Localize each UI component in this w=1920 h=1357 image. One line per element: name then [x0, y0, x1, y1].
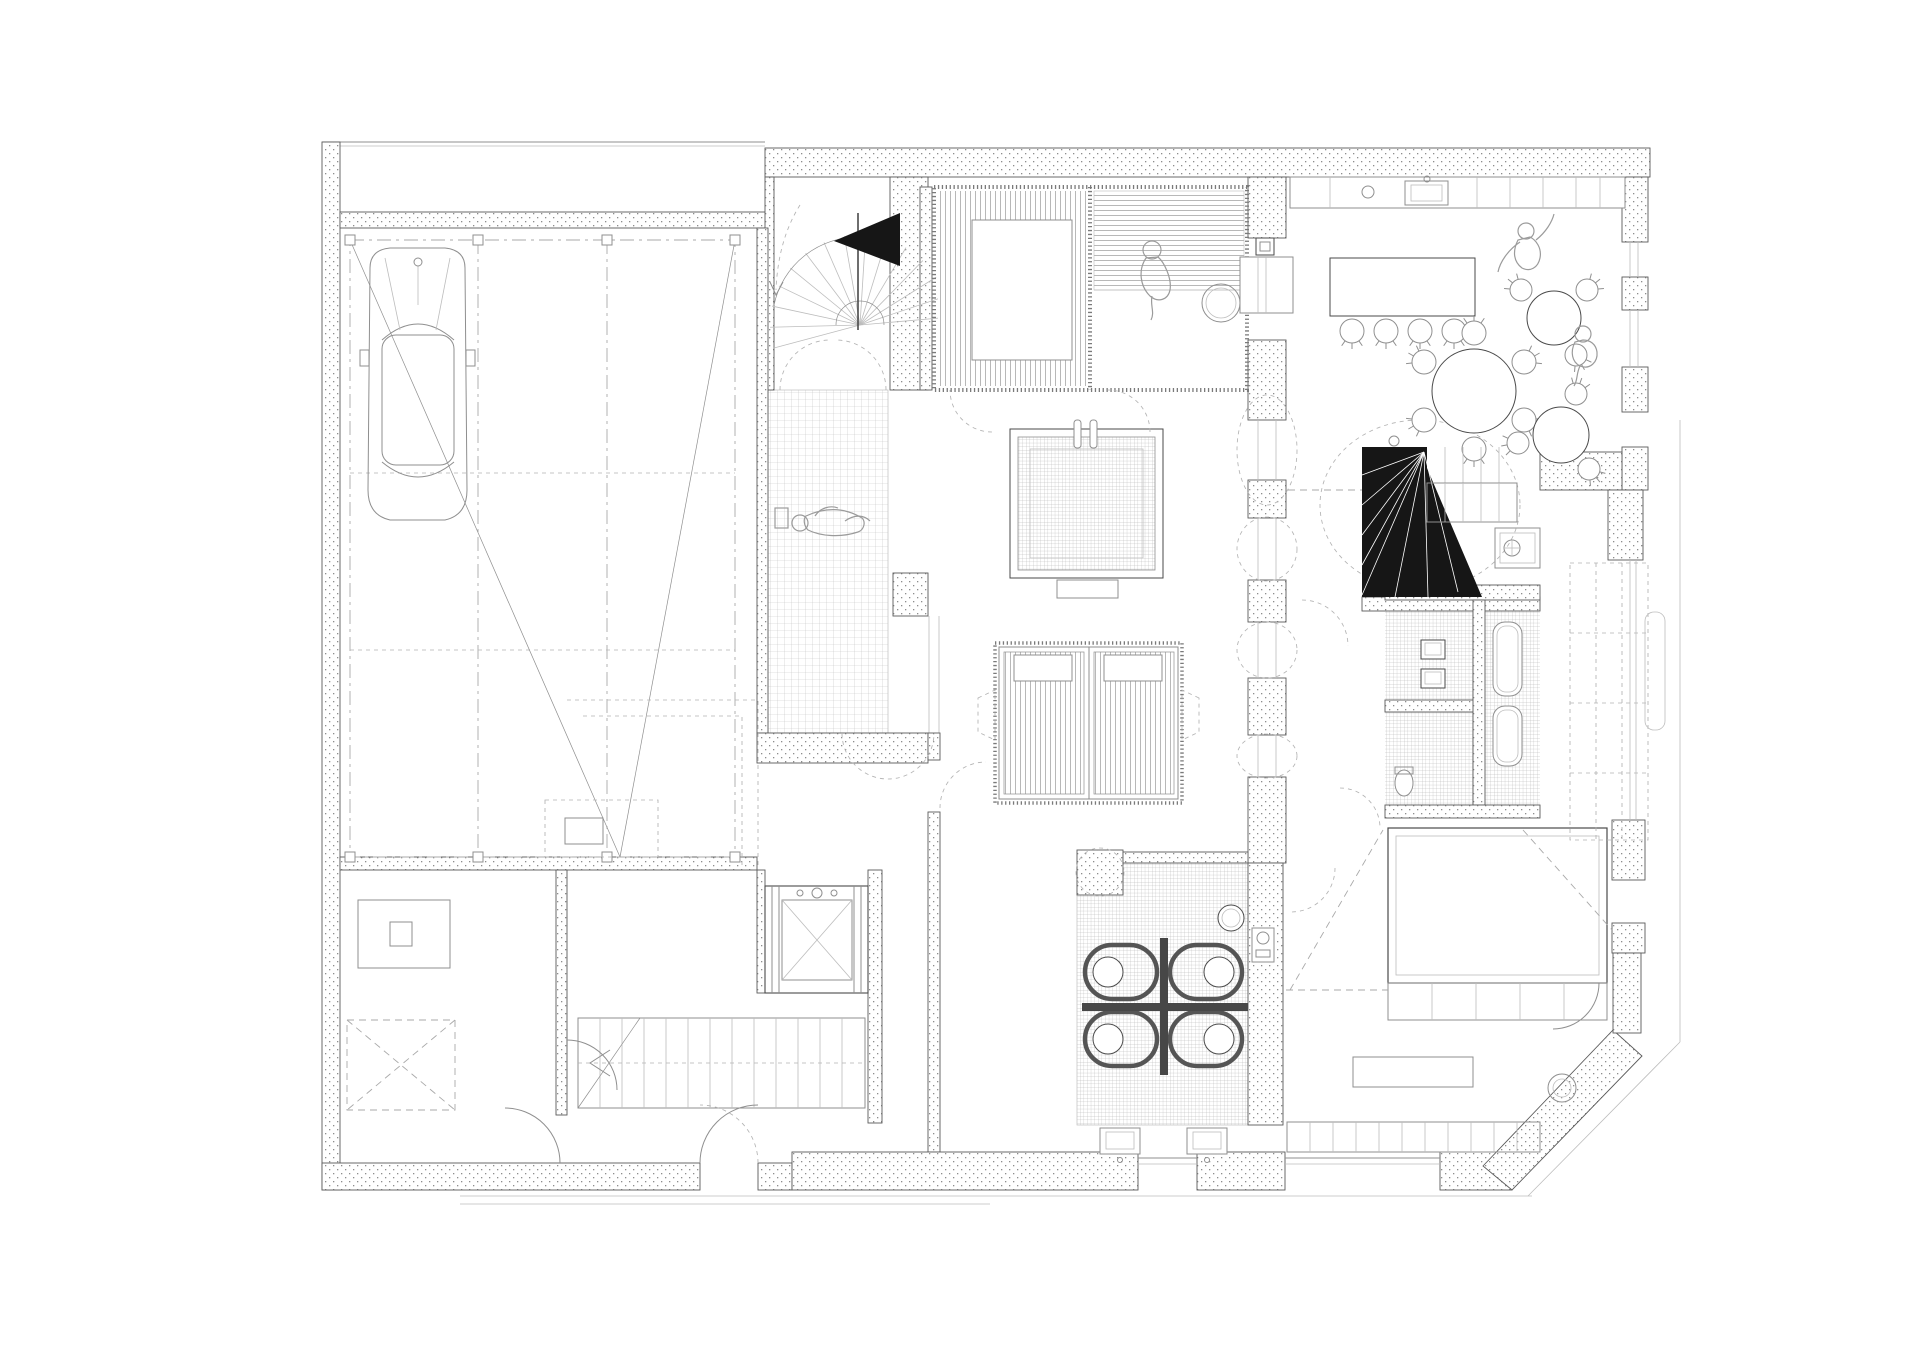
bed-pillow-left — [1014, 655, 1072, 681]
dining-chair-l3 — [1406, 408, 1436, 436]
stair-top-walkline — [776, 205, 800, 290]
wall-bay-p3 — [1612, 923, 1645, 953]
garage-diag-1 — [350, 240, 620, 857]
wc-basin-br — [1204, 1024, 1234, 1054]
hall-door-arc-1 — [1302, 600, 1348, 646]
dining-table-large — [1432, 349, 1516, 433]
bedroom-desk — [1353, 1057, 1473, 1087]
lobby-door-arc-1 — [780, 340, 830, 390]
dining-chair-s1 — [1504, 274, 1532, 301]
wc-partition-h — [1082, 1003, 1248, 1011]
wall-dining-east-4 — [1622, 447, 1648, 490]
wall-left — [322, 142, 340, 1190]
stair-top-cut-triangle — [834, 213, 900, 266]
closet-room — [1388, 828, 1607, 983]
dining-chair-s3 — [1565, 344, 1591, 372]
car-mirror-right — [466, 350, 475, 366]
massage-table — [972, 220, 1072, 360]
wall-poolwest-b — [928, 812, 940, 1152]
wall-garage-east — [757, 228, 768, 733]
wall-poolwest-a — [928, 733, 940, 760]
dining-chair-l1 — [1462, 315, 1486, 345]
wc-basin-tr — [1204, 957, 1234, 987]
wc-basin-tl — [1093, 957, 1123, 987]
wall-lift-west — [757, 870, 765, 993]
lobby-door-arc-2 — [836, 340, 886, 390]
wall-garage-north — [340, 212, 768, 228]
hall-door-arc-2 — [1340, 788, 1380, 828]
car-roof — [382, 335, 454, 465]
pool-door-arc — [940, 762, 986, 808]
storage-desk — [358, 900, 450, 968]
garage-col-8 — [730, 852, 740, 862]
wall-bay-p2 — [1612, 820, 1645, 880]
garage-col-1 — [345, 235, 355, 245]
void-square — [347, 1020, 455, 1110]
dining-chair-l2 — [1406, 346, 1436, 374]
pool-ladder-2 — [1090, 420, 1097, 448]
wall-dining-east-3 — [1622, 367, 1648, 412]
wall-pk-e — [1248, 678, 1286, 735]
lift-pulley-right — [831, 890, 837, 896]
wall-south-left — [322, 1163, 700, 1190]
kitchen-island — [1330, 258, 1475, 316]
garage-col-4 — [730, 235, 740, 245]
courtyard-floor — [768, 390, 888, 733]
wall-garage-south — [340, 857, 757, 870]
wall-bath-mid — [1385, 700, 1477, 712]
bed-pillow-right — [1104, 655, 1162, 681]
wall-bay-p1 — [1608, 490, 1643, 560]
island-stool-3 — [1408, 319, 1432, 349]
dining-chair-l6 — [1512, 346, 1542, 374]
car-hood-left — [385, 258, 400, 330]
wall-dining-east-1 — [1622, 177, 1648, 242]
garage-diag-2 — [620, 240, 735, 857]
pool-ladder-1 — [1074, 420, 1081, 448]
void-diag-2 — [347, 1020, 455, 1110]
closet-door-arc — [1553, 983, 1599, 1029]
wc-basin-bl — [1093, 1024, 1123, 1054]
pool-bench — [1057, 580, 1118, 598]
column-ellipse-3 — [1237, 622, 1297, 678]
person-standing-arm-right — [1536, 214, 1554, 240]
garage-pit-inner — [565, 818, 603, 844]
wall-bath-bot — [1385, 805, 1540, 818]
wall-pk-b — [1248, 340, 1286, 420]
wall-top — [765, 148, 1650, 177]
dining-table-small — [1527, 291, 1581, 345]
wall-court-south — [757, 733, 928, 763]
wall-hall-east — [868, 870, 882, 1123]
wall-chamfer — [1483, 1030, 1642, 1190]
sauna-tub-inner — [1206, 288, 1236, 318]
bedroom-door-arc — [1291, 868, 1335, 912]
person-sitting-sauna-legs — [1151, 296, 1153, 320]
wall-pk-f — [1248, 777, 1286, 863]
pool-water — [1018, 437, 1155, 570]
entry-door-arc-1 — [700, 1105, 758, 1163]
dining-chair-m1 — [1565, 378, 1590, 405]
corridor-door-arc-2 — [505, 1108, 560, 1163]
floor-plan-page — [0, 0, 1920, 1357]
column-ellipse-2 — [1237, 517, 1297, 581]
lift-pulley-left — [797, 890, 803, 896]
garage-col-2 — [473, 235, 483, 245]
void-diag-1 — [347, 1020, 455, 1110]
kitchen-counter — [1290, 177, 1625, 208]
stair2-landing-treads — [1445, 483, 1499, 522]
car-badge — [414, 258, 422, 266]
wall-south-left-2 — [758, 1163, 792, 1190]
car-hood-right — [436, 258, 450, 330]
wall-dining-east-2 — [1622, 277, 1648, 310]
wall-desk-east — [556, 870, 567, 1115]
garage-col-5 — [345, 852, 355, 862]
island-stool-1 — [1340, 319, 1364, 349]
wardrobe-band — [1388, 983, 1607, 1020]
storage-desk-inset — [390, 922, 412, 946]
terrace-steps-treads — [1310, 1122, 1517, 1152]
duct-dash-outer — [567, 700, 758, 866]
wall-south-mid-2 — [1197, 1152, 1285, 1190]
sauna-door-arc-1 — [950, 390, 992, 432]
hatch-cabinet — [1240, 257, 1293, 313]
wall-wc-pier — [1077, 850, 1123, 895]
wall-box-fixture — [1256, 238, 1274, 255]
wall-wc-east — [1248, 863, 1283, 1125]
storage-door-arc — [567, 1040, 617, 1090]
bed-flap-left — [978, 690, 995, 740]
garage-col-3 — [602, 235, 612, 245]
ceiling-dash-1 — [1290, 830, 1383, 990]
sauna-door-arc-2 — [1108, 390, 1150, 432]
wall-wc-north — [1123, 852, 1248, 863]
wall-bay-p4 — [1613, 953, 1641, 1033]
car-mirror-left — [360, 350, 369, 366]
island-stool-2 — [1374, 319, 1398, 349]
entry-door-arc-2 — [700, 1105, 758, 1163]
bed-flap-right — [1182, 690, 1199, 740]
wall-sauna-west — [920, 187, 932, 390]
lift-motor — [812, 888, 822, 898]
stair2-handrail-start — [1389, 436, 1399, 446]
wall-south-mid — [792, 1152, 1138, 1190]
dining-table-mid — [1533, 407, 1589, 463]
person-standing-body — [1515, 237, 1541, 270]
person-standing-head — [1518, 223, 1534, 239]
wall-pk-a — [1248, 177, 1286, 238]
garage-col-6 — [473, 852, 483, 862]
column-ellipse-4 — [1237, 734, 1297, 778]
wall-bath-vert — [1473, 600, 1485, 805]
wall-court-pier — [893, 573, 928, 616]
dining-chair-s2 — [1576, 274, 1604, 301]
dining-chair-m2 — [1501, 432, 1529, 455]
car-body — [368, 248, 467, 520]
floor-plan-svg — [0, 0, 1920, 1357]
wall-pk-d — [1248, 580, 1286, 622]
dining-chair-l4 — [1462, 437, 1486, 467]
garage-pit — [545, 800, 658, 857]
person-standing-arm-left — [1498, 242, 1520, 272]
